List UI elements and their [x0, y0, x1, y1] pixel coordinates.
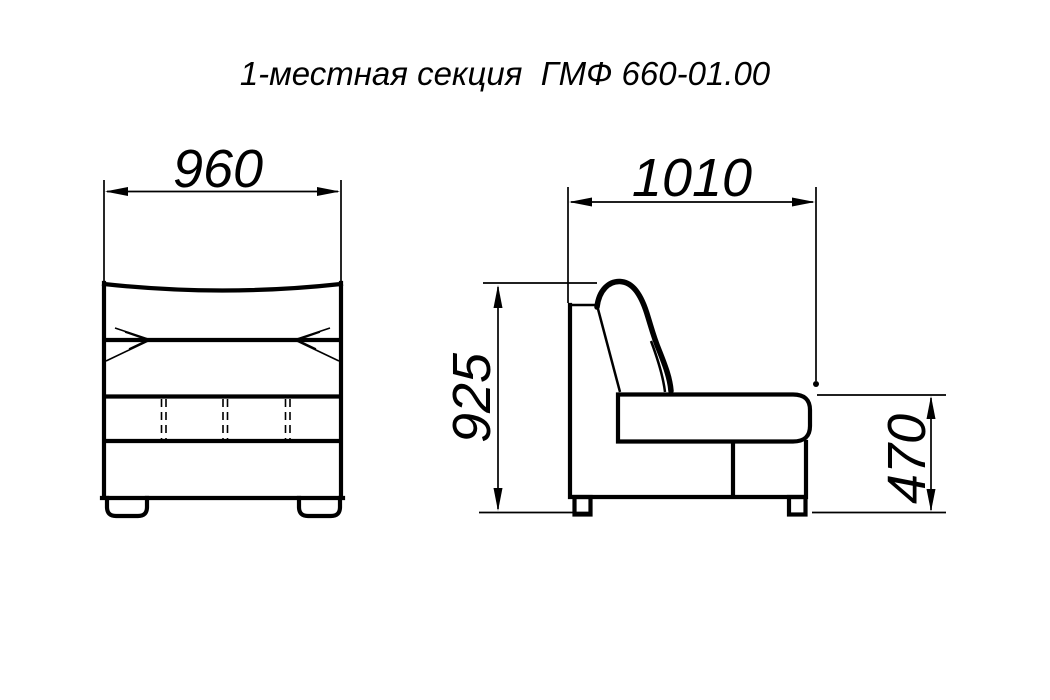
seat-height-dimension: 470: [812, 395, 946, 513]
drawing-svg: 1-местная секция ГМФ 660-01.00 960: [0, 0, 1050, 700]
drawing-title: 1-местная секция ГМФ 660-01.00: [240, 55, 771, 92]
side-depth-dimension: 1010: [568, 148, 819, 387]
front-width-dimension: 960: [104, 139, 341, 282]
front-width-value: 960: [173, 139, 263, 199]
front-body-outline: [102, 283, 343, 498]
side-back-cushion-front-edge: [598, 309, 620, 392]
side-view: 1010 925 470: [442, 148, 946, 515]
side-seat-outline: [618, 395, 810, 442]
technical-drawing-page: 1-местная секция ГМФ 660-01.00 960: [0, 0, 1050, 700]
seat-height-value: 470: [877, 414, 937, 504]
side-depth-value: 1010: [632, 148, 752, 208]
arrowhead-right-icon: [792, 198, 815, 207]
side-foot-right: [789, 497, 806, 515]
extension-line-end-dot: [813, 381, 819, 387]
arrowhead-left-icon: [105, 187, 128, 196]
arrowhead-down-icon: [494, 488, 503, 511]
stitch-marks: [162, 399, 291, 439]
side-back-cushion-outline: [597, 281, 671, 391]
overall-height-dimension: 925: [442, 283, 597, 513]
fabric-gather-marks-left: [106, 328, 148, 361]
arrowhead-up-icon: [494, 285, 503, 308]
fabric-gather-marks-right: [297, 328, 339, 361]
front-foot-left: [107, 498, 147, 516]
front-foot-right: [299, 498, 340, 516]
overall-height-value: 925: [442, 352, 502, 443]
arrowhead-right-icon: [317, 187, 340, 196]
front-view: 960: [102, 139, 343, 516]
arrowhead-left-icon: [569, 198, 592, 207]
